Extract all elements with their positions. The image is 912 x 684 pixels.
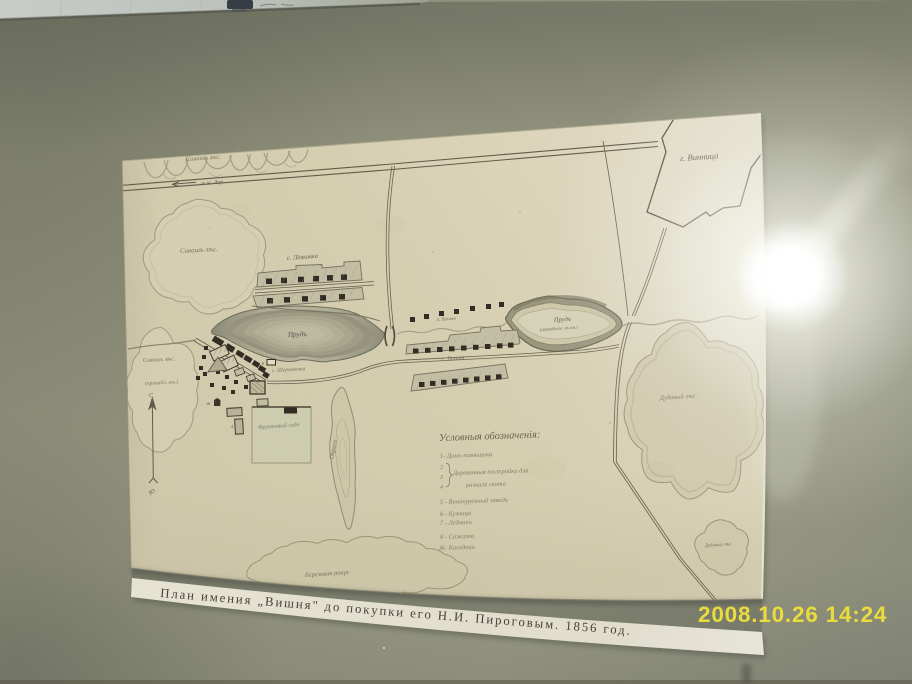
svg-text:2008.10.26 14:24: 2008.10.26 14:24 <box>698 602 887 627</box>
